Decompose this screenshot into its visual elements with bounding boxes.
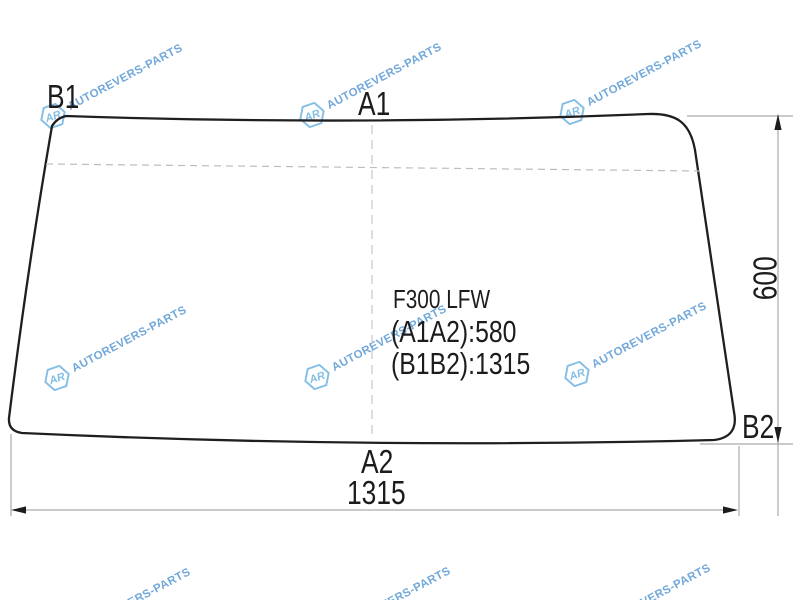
- dimension-width-value: 1315: [347, 476, 406, 509]
- dimension-height-value: 600: [749, 259, 780, 301]
- label-a1: A1: [358, 87, 390, 120]
- label-b1: B1: [47, 80, 79, 113]
- spec-b1b2: (B1B2):1315: [391, 348, 530, 379]
- part-code: F300 LFW: [393, 286, 490, 312]
- arrow-left-icon: [11, 506, 26, 513]
- shade-band-dashed-line: [46, 164, 699, 171]
- spec-a1a2: (A1A2):580: [391, 316, 516, 347]
- arrow-right-icon: [723, 506, 738, 513]
- label-b2: B2: [742, 410, 774, 443]
- windshield-diagram: AR AUTOREVERS-PARTS AR AUTOREVERS-PARTS …: [0, 0, 800, 600]
- arrow-down-icon: [774, 427, 781, 443]
